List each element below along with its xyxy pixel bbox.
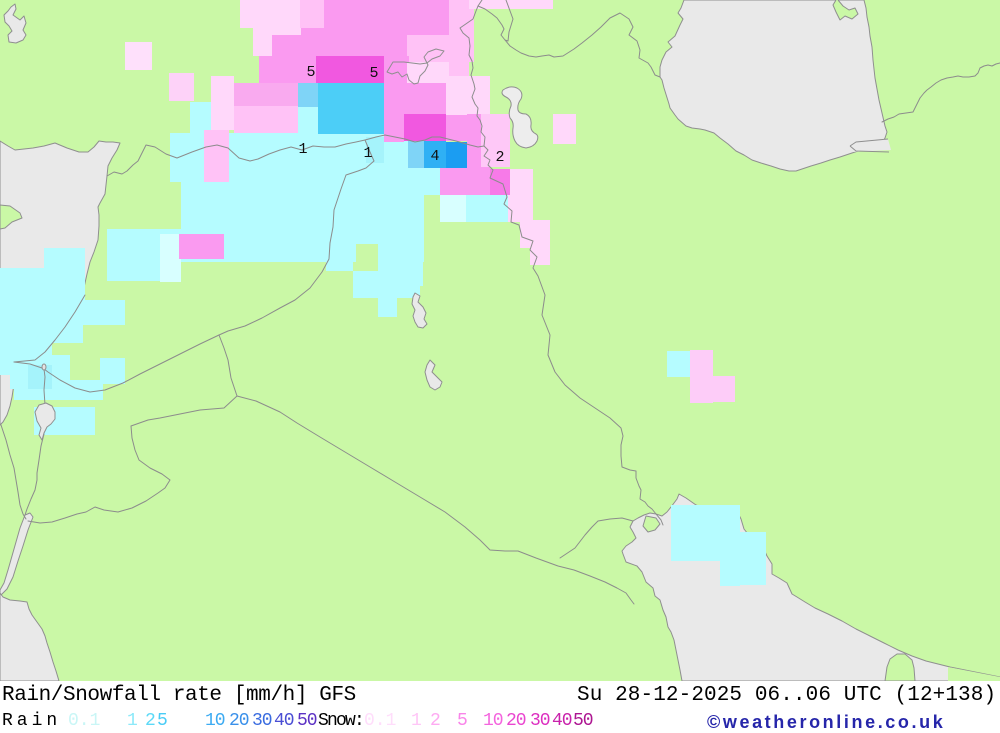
svg-text:4: 4: [430, 148, 439, 165]
svg-text:1: 1: [298, 141, 307, 158]
svg-text:2: 2: [495, 149, 504, 166]
svg-text:5: 5: [306, 64, 315, 81]
svg-text:1: 1: [363, 145, 372, 162]
svg-text:5: 5: [369, 65, 378, 82]
